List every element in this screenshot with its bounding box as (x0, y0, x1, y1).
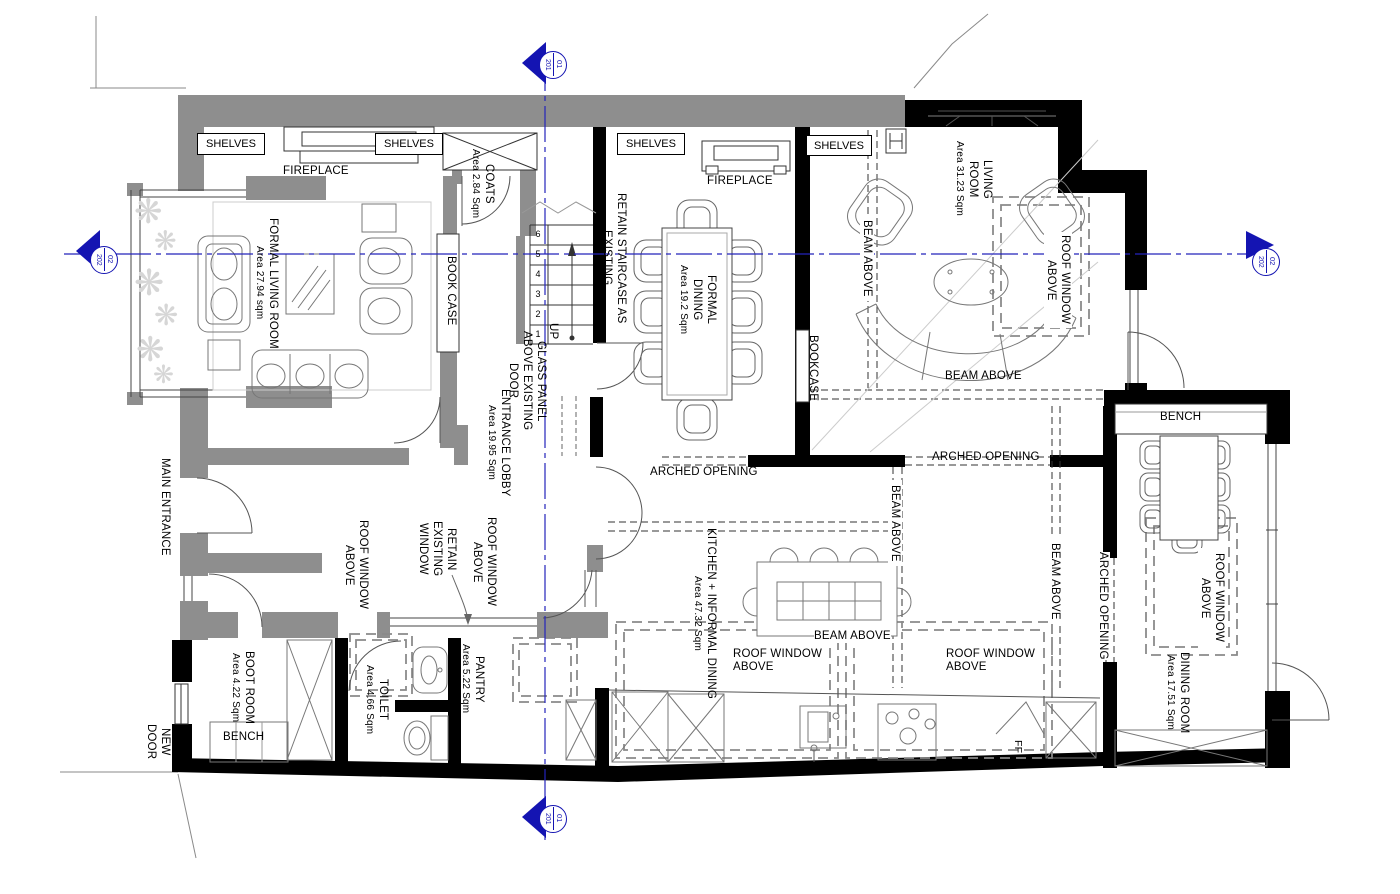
retain-staircase-label: RETAIN STAIRCASE AS EXISTING (600, 182, 628, 334)
stair-number: 1 (531, 327, 545, 341)
book-case-label: BOOK CASE (444, 250, 458, 332)
section-marker-circle: 01 201 (539, 805, 567, 833)
room-label-pantry: PANTRY Area 5.22 Sqm (458, 635, 486, 723)
arched-opening-label-1: ARCHED OPENING (650, 466, 758, 479)
shelves-label-3: SHELVES (617, 133, 685, 155)
main-entrance-label: MAIN ENTRANCE (158, 448, 172, 566)
sheet-number: 202 (92, 248, 104, 271)
glass-panel-label: GLASS PANEL ABOVE EXISTING DOOR (506, 326, 548, 436)
section-marker-circle: 02 202 (1252, 248, 1280, 276)
section-number: 02 (104, 248, 116, 271)
room-name: COATS (482, 145, 496, 223)
room-area: Area 27.94 sqm (252, 208, 266, 358)
room-area: Area 19.2 Sqm (676, 262, 690, 338)
roof-window-kitchen-label-2: ROOF WINDOW ABOVE (946, 648, 1041, 674)
shelves-label-1: SHELVES (197, 133, 265, 155)
beam-above-living-v-label: BEAM ABOVE (860, 215, 874, 301)
shelves-label-4: SHELVES (806, 135, 872, 156)
room-name: BOOT ROOM (242, 638, 256, 738)
roof-window-lobby-label-2: ROOF WINDOW ABOVE (470, 512, 498, 612)
room-name: PANTRY (472, 635, 486, 723)
stair-number: 5 (531, 247, 545, 261)
room-label-boot-room: BOOT ROOM Area 4.22 Sqm (228, 638, 256, 738)
sheet-number: 202 (1254, 250, 1266, 273)
sheet-number: 201 (541, 807, 553, 830)
room-name: TOILET (376, 652, 390, 747)
roof-window-dining-label: ROOF WINDOW ABOVE (1198, 548, 1226, 648)
beam-above-living-h-label: BEAM ABOVE (945, 370, 1022, 383)
room-label-dining-room: DINING ROOM Area 17.51 Sqm (1163, 645, 1191, 741)
room-name: DINING ROOM (1177, 645, 1191, 741)
room-name: KITCHEN + INFORMAL DINING (704, 518, 718, 710)
room-area: Area 31.23 Sqm (952, 140, 966, 218)
room-area: Area 5.22 Sqm (458, 635, 472, 723)
sheet-number: 201 (541, 53, 553, 76)
roof-window-kitchen-label-1: ROOF WINDOW ABOVE (733, 648, 828, 674)
room-name: FORMAL DINING (690, 262, 718, 338)
roof-window-lobby-label-1: ROOF WINDOW ABOVE (342, 515, 370, 615)
floor-plan: ❋ ❋ ❋ ❋ ❋ ❋ SHELVES SHELVES SHELVES SHEL… (0, 0, 1400, 894)
new-door-label: NEW DOOR (144, 715, 172, 769)
stair-number: 4 (531, 267, 545, 281)
room-area: Area 47.32 Sqm (690, 518, 704, 710)
room-label-coats: COATS Area 2.84 Sqm (468, 145, 496, 223)
section-number: 02 (1266, 250, 1278, 273)
arched-opening-v-label: ARCHED OPENING (1096, 552, 1110, 660)
roof-window-living-label: ROOF WINDOW ABOVE (1044, 232, 1072, 328)
fireplace-label-2: FIREPLACE (707, 175, 773, 188)
shelves-label-2: SHELVES (375, 133, 443, 155)
room-area: Area 19.95 Sqm (484, 382, 498, 504)
beam-above-kitchen-v1-label: BEAM ABOVE (888, 480, 902, 566)
room-label-toilet: TOILET Area 4.66 Sqm (362, 652, 390, 747)
room-label-formal-dining: FORMAL DINING Area 19.2 Sqm (676, 262, 718, 338)
room-name: FORMAL LIVING ROOM (266, 208, 280, 358)
room-name: LIVING ROOM (966, 140, 994, 218)
retain-existing-window-label: RETAIN EXISTING WINDOW (416, 512, 458, 586)
room-label-formal-living: FORMAL LIVING ROOM Area 27.94 sqm (252, 208, 280, 358)
beam-above-kitchen-v2-label: BEAM ABOVE (1048, 538, 1062, 624)
section-marker-circle: 01 201 (539, 51, 567, 79)
ff-label: FF (1011, 734, 1025, 760)
room-area: Area 4.22 Sqm (228, 638, 242, 738)
section-number: 01 (553, 53, 565, 76)
room-area: Area 17.51 Sqm (1163, 645, 1177, 741)
bookcase-label: BOOKCASE (806, 328, 820, 408)
room-area: Area 4.66 Sqm (362, 652, 376, 747)
section-marker-circle: 02 202 (90, 246, 118, 274)
room-label-kitchen: KITCHEN + INFORMAL DINING Area 47.32 Sqm (690, 518, 718, 710)
stair-number: 2 (531, 307, 545, 321)
room-area: Area 2.84 Sqm (468, 145, 482, 223)
up-label: UP (546, 318, 560, 344)
stair-number: 6 (531, 227, 545, 241)
stair-number: 3 (531, 287, 545, 301)
section-number: 01 (553, 807, 565, 830)
beam-above-kitchen-h-label: BEAM ABOVE (814, 630, 891, 643)
arched-opening-label-2: ARCHED OPENING (932, 451, 1040, 464)
room-label-living-room: LIVING ROOM Area 31.23 Sqm (952, 140, 994, 218)
bench-label-dining: BENCH (1160, 411, 1201, 424)
fireplace-label-1: FIREPLACE (283, 165, 349, 178)
